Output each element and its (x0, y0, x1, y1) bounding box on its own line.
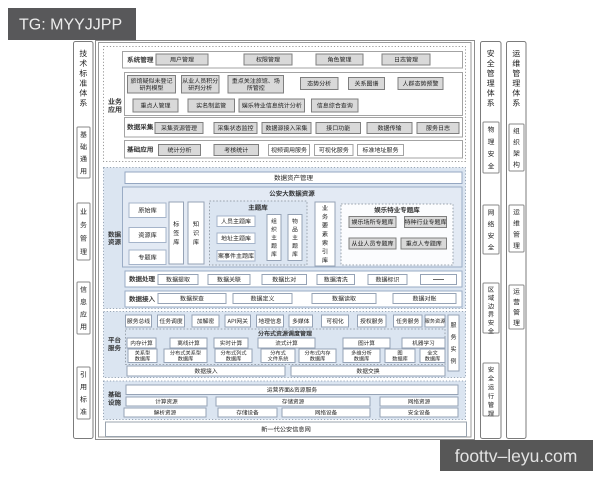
svg-text:foottv–leyu.com: foottv–leyu.com (455, 446, 578, 466)
svg-text:TG: MYYJJPP: TG: MYYJJPP (19, 17, 122, 34)
